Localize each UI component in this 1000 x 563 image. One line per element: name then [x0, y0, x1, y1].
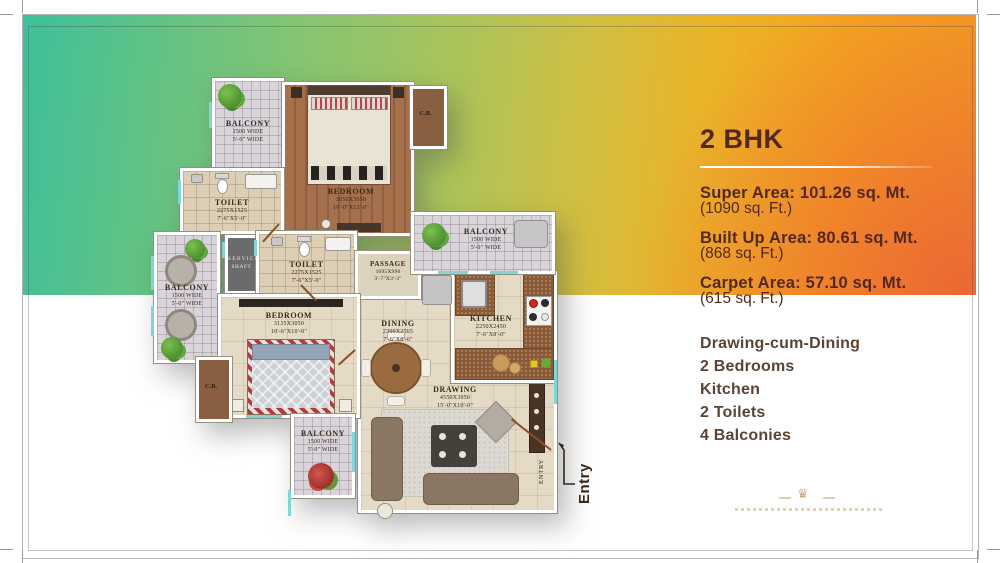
feature-item: 2 Toilets [700, 406, 952, 420]
bed [247, 339, 335, 415]
bedroom2-label: BEDROOM 3135X3050 10'-6"X10'-0" [228, 311, 350, 337]
dining-label: DINING 2300X2565 7'-6"X8'-6" [363, 319, 433, 345]
balcony-bottom-label: BALCONY 1500 WIDE 5'-0" WIDE [294, 429, 352, 455]
nightstand [291, 87, 302, 98]
feature-item: Kitchen [700, 383, 952, 397]
builtup-area: Built Up Area: 80.61 sq. Mt. (868 sq. Ft… [700, 230, 952, 262]
feature-item: 4 Balconies [700, 429, 952, 443]
cutting-board [492, 354, 510, 372]
window-mark [438, 271, 468, 274]
side-stool [377, 503, 393, 519]
room-toilet-2: TOILET 2275X1525 7'-6"X5'-0" [256, 231, 357, 296]
pillow [311, 97, 348, 110]
room-balcony-top-left: BALCONY 1500 WIDE 5'-0" WIDE [212, 78, 284, 174]
cupboard-1: C.B. [410, 86, 447, 149]
dining-chair [387, 396, 405, 406]
floor-plan: DINING 2300X2565 7'-6"X8'-6" DRAWING 455… [138, 60, 583, 520]
builtup-area-sub: (868 sq. Ft.) [700, 246, 952, 262]
entry-inner-label: ENTRY [538, 446, 550, 484]
coffee-table [431, 425, 477, 467]
crop-mark [977, 550, 978, 563]
window-mark [490, 271, 518, 274]
stove-burner [541, 299, 549, 307]
carpet-area-sub: (615 sq. Ft.) [700, 291, 952, 307]
tv-unit-dot [534, 409, 539, 414]
coffee-table-dot [459, 451, 466, 458]
balcony-tl-label: BALCONY 1500 WIDE 5'-0" WIDE [215, 119, 281, 145]
bed-runner [311, 166, 387, 180]
crop-mark [987, 549, 1000, 550]
window-mark [246, 415, 282, 418]
balcony-tr-label: BALCONY 1500 WIDE 5'-0" WIDE [438, 227, 534, 253]
headboard [308, 86, 390, 95]
coffee-table-dot [459, 433, 466, 440]
crest-wing-icon [823, 497, 835, 499]
room-kitchen: KITCHEN 2250X2450 7'-6"X8'-0" [451, 271, 557, 383]
cb1-label: C.B. [413, 110, 438, 118]
tv-console [239, 299, 343, 307]
bed [307, 85, 391, 185]
dining-chair [361, 359, 371, 377]
kitchen-sink [461, 280, 487, 308]
toilet-icon [217, 179, 228, 194]
room-bedroom-2: BEDROOM 3135X3050 10'-6"X10'-0" [218, 294, 360, 418]
coffee-table-dot [439, 433, 446, 440]
plant-icon [218, 84, 242, 108]
crest-wing-icon [779, 497, 791, 499]
room-balcony-left: BALCONY 1500 WIDE 5'-0" WIDE [154, 232, 220, 363]
toilet1-label: TOILET 2275X1525 7'-6"X5'-0" [183, 198, 281, 224]
feature-list: Drawing-cum-Dining 2 Bedrooms Kitchen 2 … [700, 337, 952, 443]
cutting-board [509, 362, 521, 374]
room-bedroom-1: BEDROOM 3050X3650 10'-0"X12'-0" [282, 82, 414, 236]
pillow [351, 97, 388, 110]
bath-sink [245, 174, 277, 189]
coffee-table-dot [439, 451, 446, 458]
room-balcony-top-right: BALCONY 1500 WIDE 5'-0" WIDE [411, 212, 555, 274]
entry-arrow-icon [557, 438, 577, 488]
corner-sink [191, 174, 203, 183]
mattress [252, 360, 330, 408]
window-mark [352, 432, 355, 472]
nightstand [231, 399, 244, 412]
unit-type-title: 2 BHK [700, 124, 952, 155]
toilet-icon [299, 242, 310, 257]
builtup-area-value: Built Up Area: 80.61 sq. Mt. [700, 230, 952, 246]
logo-tagline-illegible [735, 508, 883, 511]
feature-item: 2 Bedrooms [700, 360, 952, 374]
tv-unit-dot [534, 425, 539, 430]
pillow [252, 344, 330, 360]
carpet-area: Carpet Area: 57.10 sq. Mt. (615 sq. Ft.) [700, 275, 952, 307]
window-mark [151, 256, 154, 290]
crest-icon: ♛ [797, 487, 809, 502]
sofa-bottom [423, 473, 519, 505]
window-mark [222, 242, 225, 258]
door-swing [338, 349, 356, 365]
room-balcony-bottom: BALCONY 1500 WIDE 5'-0" WIDE [291, 414, 355, 498]
corner-sink [271, 237, 283, 246]
window-mark [151, 306, 154, 336]
window-mark [178, 180, 181, 204]
cupboard-2: C.B. [196, 357, 232, 422]
kitchen-label: KITCHEN 2250X2450 7'-6"X8'-0" [458, 314, 524, 340]
super-area-value: Super Area: 101.26 sq. Mt. [700, 185, 952, 201]
sofa-left [371, 417, 403, 501]
crop-mark [0, 549, 13, 550]
stool [321, 219, 331, 229]
carpet-area-value: Carpet Area: 57.10 sq. Mt. [700, 275, 952, 291]
bedroom1-label: BEDROOM 3050X3650 10'-0"X12'-0" [291, 187, 411, 213]
nightstand [339, 399, 352, 412]
info-panel: 2 BHK Super Area: 101.26 sq. Mt. (1090 s… [700, 124, 952, 452]
stove-burner [541, 313, 549, 321]
drawing-label: DRAWING 4550X3050 15'-0"X10'-0" [405, 385, 505, 411]
nightstand [393, 87, 404, 98]
room-toilet-1: TOILET 2275X1525 7'-6"X5'-0" [180, 168, 284, 234]
window-mark [288, 490, 291, 516]
crop-mark [0, 14, 13, 15]
dining-table-center [392, 364, 400, 372]
window-mark [554, 360, 557, 404]
crop-mark [977, 0, 978, 13]
builder-logo-watermark: ♛ [735, 487, 885, 515]
crop-mark [22, 550, 23, 563]
kitchen-item [530, 360, 538, 368]
title-underline [700, 166, 932, 168]
stove-burner [529, 313, 537, 321]
super-area-sub: (1090 sq. Ft.) [700, 201, 952, 217]
feature-item: Drawing-cum-Dining [700, 337, 952, 351]
plant-icon [161, 337, 183, 359]
bath-sink [325, 237, 351, 251]
flower-plant-icon [308, 463, 334, 489]
balcony-left-label: BALCONY 1500 WIDE 5'-0" WIDE [157, 283, 217, 309]
dining-chair [421, 359, 431, 377]
cb2-label: C.B. [199, 383, 223, 391]
toilet2-label: TOILET 2275X1525 7'-6"X5'-0" [259, 260, 354, 286]
crop-mark [987, 14, 1000, 15]
fridge [422, 275, 452, 305]
stove-burner [529, 299, 538, 308]
vegetables [541, 358, 551, 368]
window-mark [209, 102, 212, 128]
window-mark [254, 240, 257, 256]
service-shaft-label: SERVICE SHAFT [228, 256, 255, 271]
super-area: Super Area: 101.26 sq. Mt. (1090 sq. Ft.… [700, 185, 952, 217]
crop-mark [22, 0, 23, 13]
passage-label: PASSAGE 1095X990 3'-7"X3'-3" [358, 260, 418, 283]
entry-label: Entry [576, 426, 596, 504]
tv-unit-dot [534, 393, 539, 398]
